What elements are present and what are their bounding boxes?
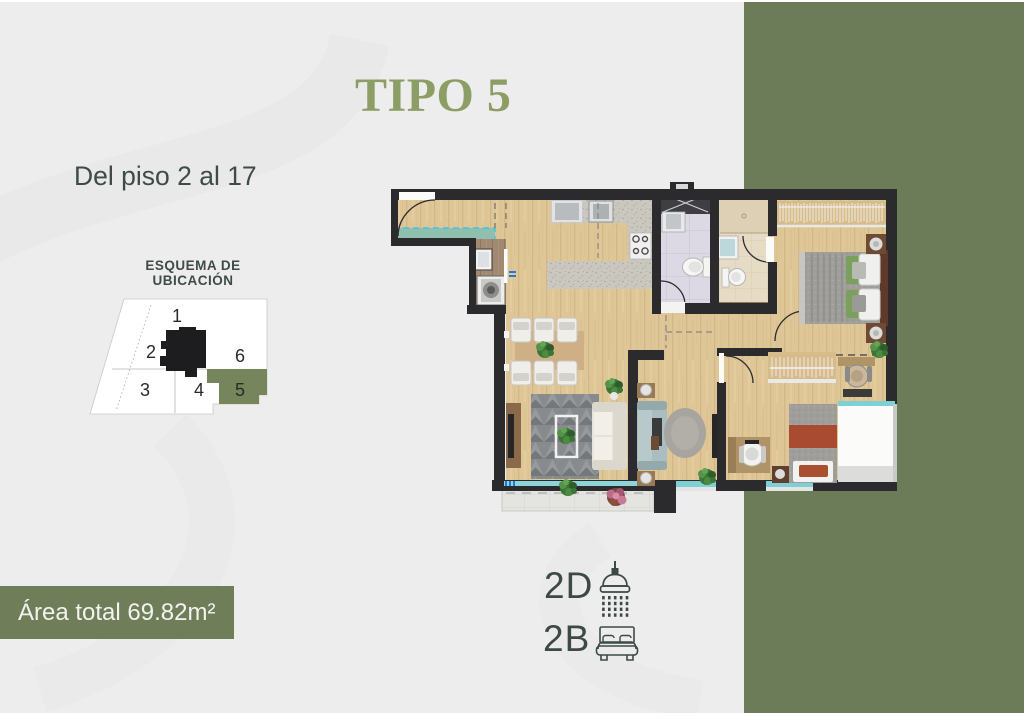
- svg-text:2: 2: [146, 342, 156, 362]
- svg-text:5: 5: [235, 380, 245, 400]
- svg-text:1: 1: [172, 306, 182, 326]
- svg-text:4: 4: [194, 380, 204, 400]
- svg-text:6: 6: [235, 346, 245, 366]
- svg-text:3: 3: [140, 380, 150, 400]
